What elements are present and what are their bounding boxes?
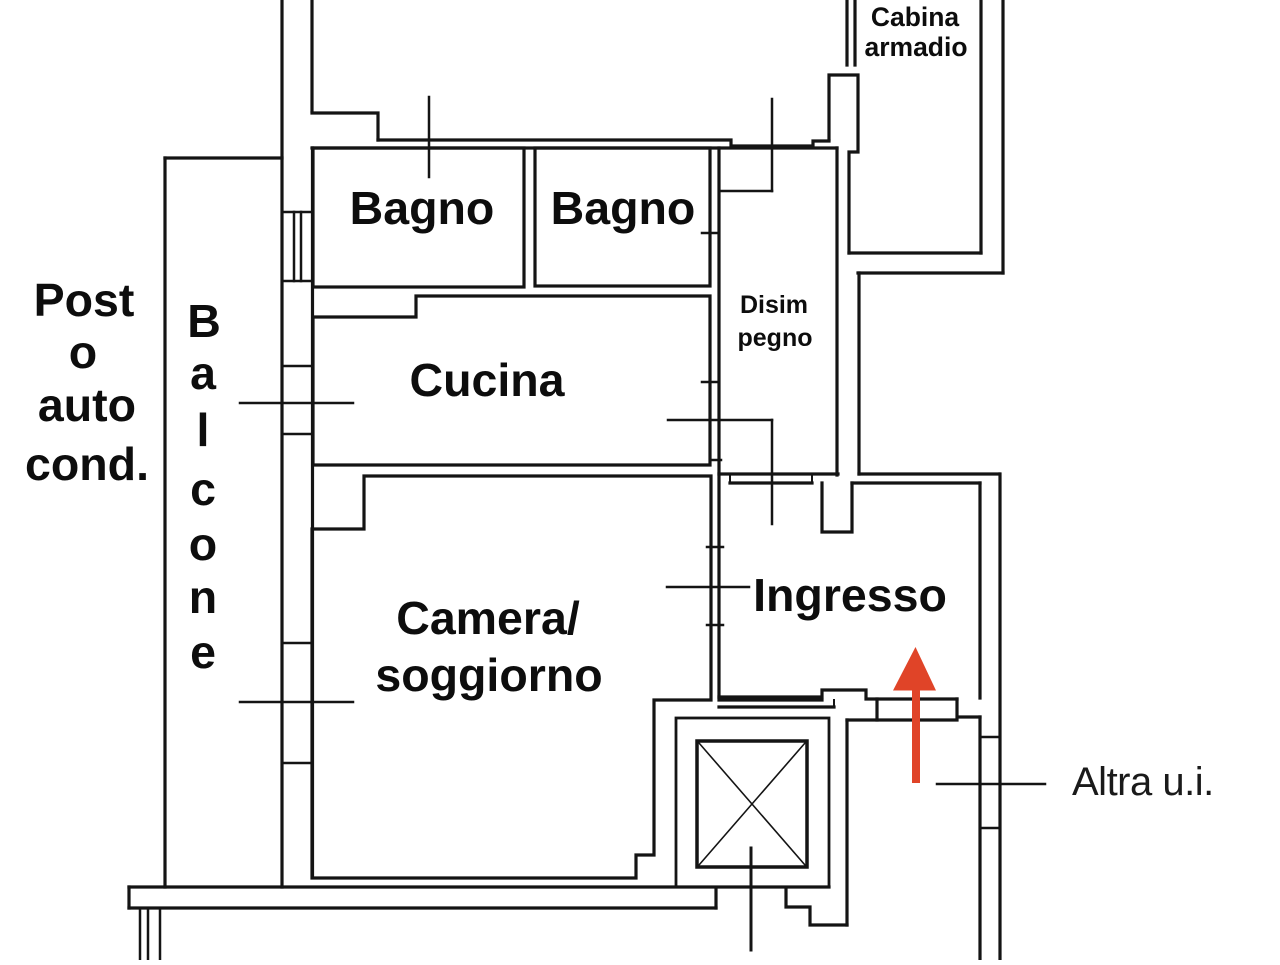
svg-text:Altra u.i.: Altra u.i. — [1072, 760, 1214, 804]
svg-text:armadio: armadio — [864, 32, 967, 62]
svg-text:Bagno: Bagno — [350, 182, 495, 234]
svg-text:Ingresso: Ingresso — [753, 569, 947, 621]
svg-text:Disim: Disim — [740, 291, 808, 319]
svg-text:pegno: pegno — [738, 324, 813, 352]
svg-text:Bagno: Bagno — [551, 182, 696, 234]
svg-text:o: o — [69, 326, 97, 378]
svg-text:o: o — [189, 518, 217, 570]
svg-text:soggiorno: soggiorno — [375, 649, 602, 701]
svg-text:cond.: cond. — [25, 438, 149, 490]
svg-text:a: a — [190, 347, 217, 399]
svg-text:e: e — [190, 626, 216, 678]
svg-text:Camera/: Camera/ — [396, 592, 580, 644]
svg-text:c: c — [190, 463, 216, 515]
svg-text:Cabina: Cabina — [871, 2, 960, 32]
svg-text:n: n — [189, 571, 217, 623]
svg-text:B: B — [187, 295, 221, 347]
svg-text:Post: Post — [34, 274, 135, 326]
svg-text:l: l — [197, 404, 210, 456]
svg-text:Cucina: Cucina — [409, 354, 565, 406]
svg-text:auto: auto — [38, 379, 136, 431]
